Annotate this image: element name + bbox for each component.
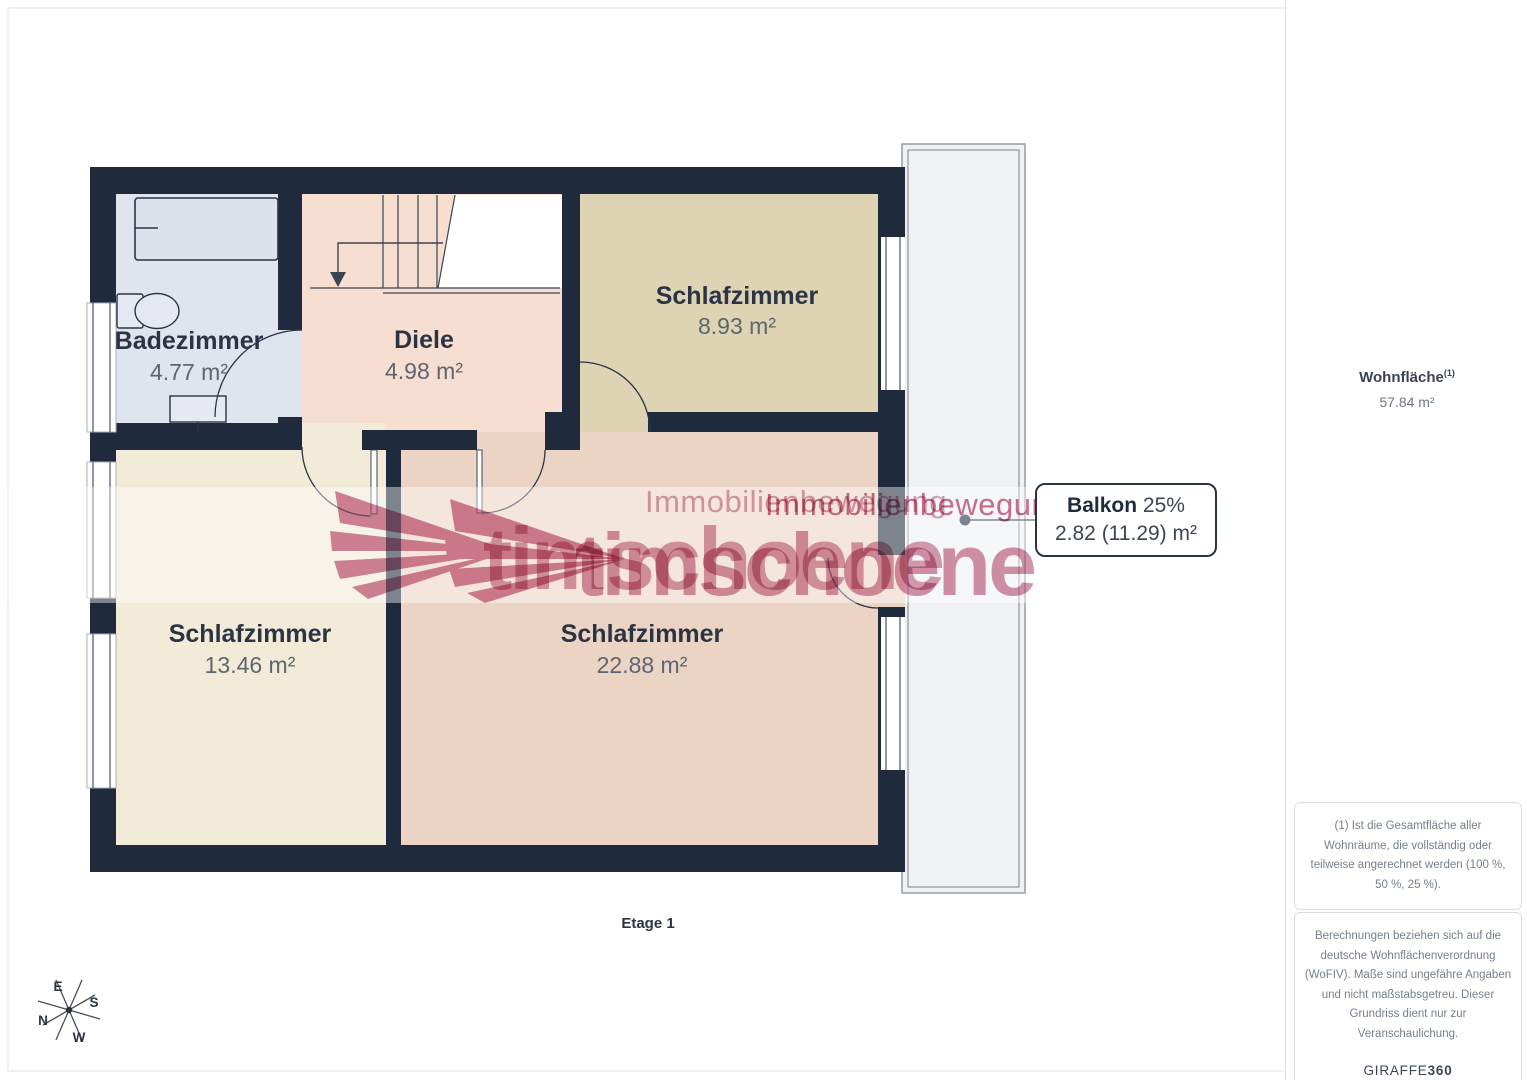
window-right-lower (881, 617, 905, 770)
total-area-footnote-marker: (1) (1444, 368, 1455, 378)
giraffe360-logo: GIRAFFE360 (1303, 1060, 1513, 1080)
floorplan-page: Badezimmer 4.77 m² Diele 4.98 m² Schlafz… (0, 0, 1527, 1080)
balcony-door-gap (878, 555, 905, 607)
balcony-callout-name: Balkon (1067, 494, 1137, 517)
window-left-upper (87, 462, 116, 598)
total-area-label: Wohnfläche (1359, 369, 1444, 386)
room-area-badezimmer: 4.77 m² (150, 359, 228, 385)
balcony-callout-percent: 25% (1143, 494, 1185, 517)
balcony-callout: Balkon 25% 2.82 (11.29) m² (1035, 483, 1217, 557)
compass-north: N (38, 1013, 48, 1028)
brand-text: GIRAFFE (1363, 1063, 1427, 1078)
sidebar: Wohnfläche(1) 57.84 m² (1) Ist die Gesam… (1285, 0, 1527, 1080)
balcony-callout-area: 2.82 (11.29) m² (1055, 520, 1197, 548)
total-area-value: 57.84 m² (1286, 394, 1527, 410)
shower-icon (135, 198, 278, 260)
total-area-block: Wohnfläche(1) 57.84 m² (1286, 368, 1527, 410)
footnote-box-2: Berechnungen beziehen sich auf die deuts… (1294, 912, 1522, 1080)
room-label-schlafzimmer-1346: Schlafzimmer (169, 620, 332, 648)
brand-text-bold: 360 (1428, 1063, 1453, 1078)
room-area-diele: 4.98 m² (385, 358, 463, 384)
room-label-badezimmer: Badezimmer (115, 327, 264, 355)
room-area-schlafzimmer-2288: 22.88 m² (597, 652, 688, 678)
compass-west: W (73, 1030, 86, 1045)
badezimmer-door-gap (278, 330, 302, 417)
room-label-schlafzimmer-893: Schlafzimmer (656, 282, 819, 310)
window-left-lower (87, 634, 116, 788)
room-area-schlafzimmer-1346: 13.46 m² (205, 652, 296, 678)
compass-south: S (89, 995, 98, 1010)
room-label-diele: Diele (394, 326, 454, 354)
footnote-box-1: (1) Ist die Gesamtfläche aller Wohnräume… (1294, 802, 1522, 910)
floor-label: Etage 1 (548, 915, 748, 932)
room-area-schlafzimmer-893: 8.93 m² (698, 313, 776, 339)
toilet-icon (117, 294, 179, 329)
room-label-schlafzimmer-2288: Schlafzimmer (561, 620, 724, 648)
compass-east: E (53, 979, 62, 994)
compass-icon: E S N W (38, 979, 100, 1045)
window-left-badezimmer (87, 303, 116, 432)
footnote-2-text: Berechnungen beziehen sich auf die deuts… (1305, 930, 1511, 1040)
window-right-upper (881, 237, 905, 390)
